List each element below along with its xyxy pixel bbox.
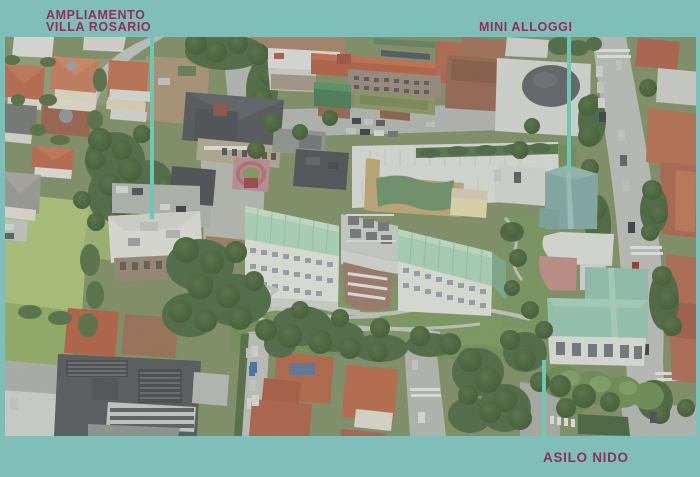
svg-text:ASILO NIDO: ASILO NIDO (543, 450, 629, 465)
svg-text:VILLA ROSARIO: VILLA ROSARIO (46, 20, 151, 34)
svg-text:MINI ALLOGGI: MINI ALLOGGI (479, 20, 573, 34)
